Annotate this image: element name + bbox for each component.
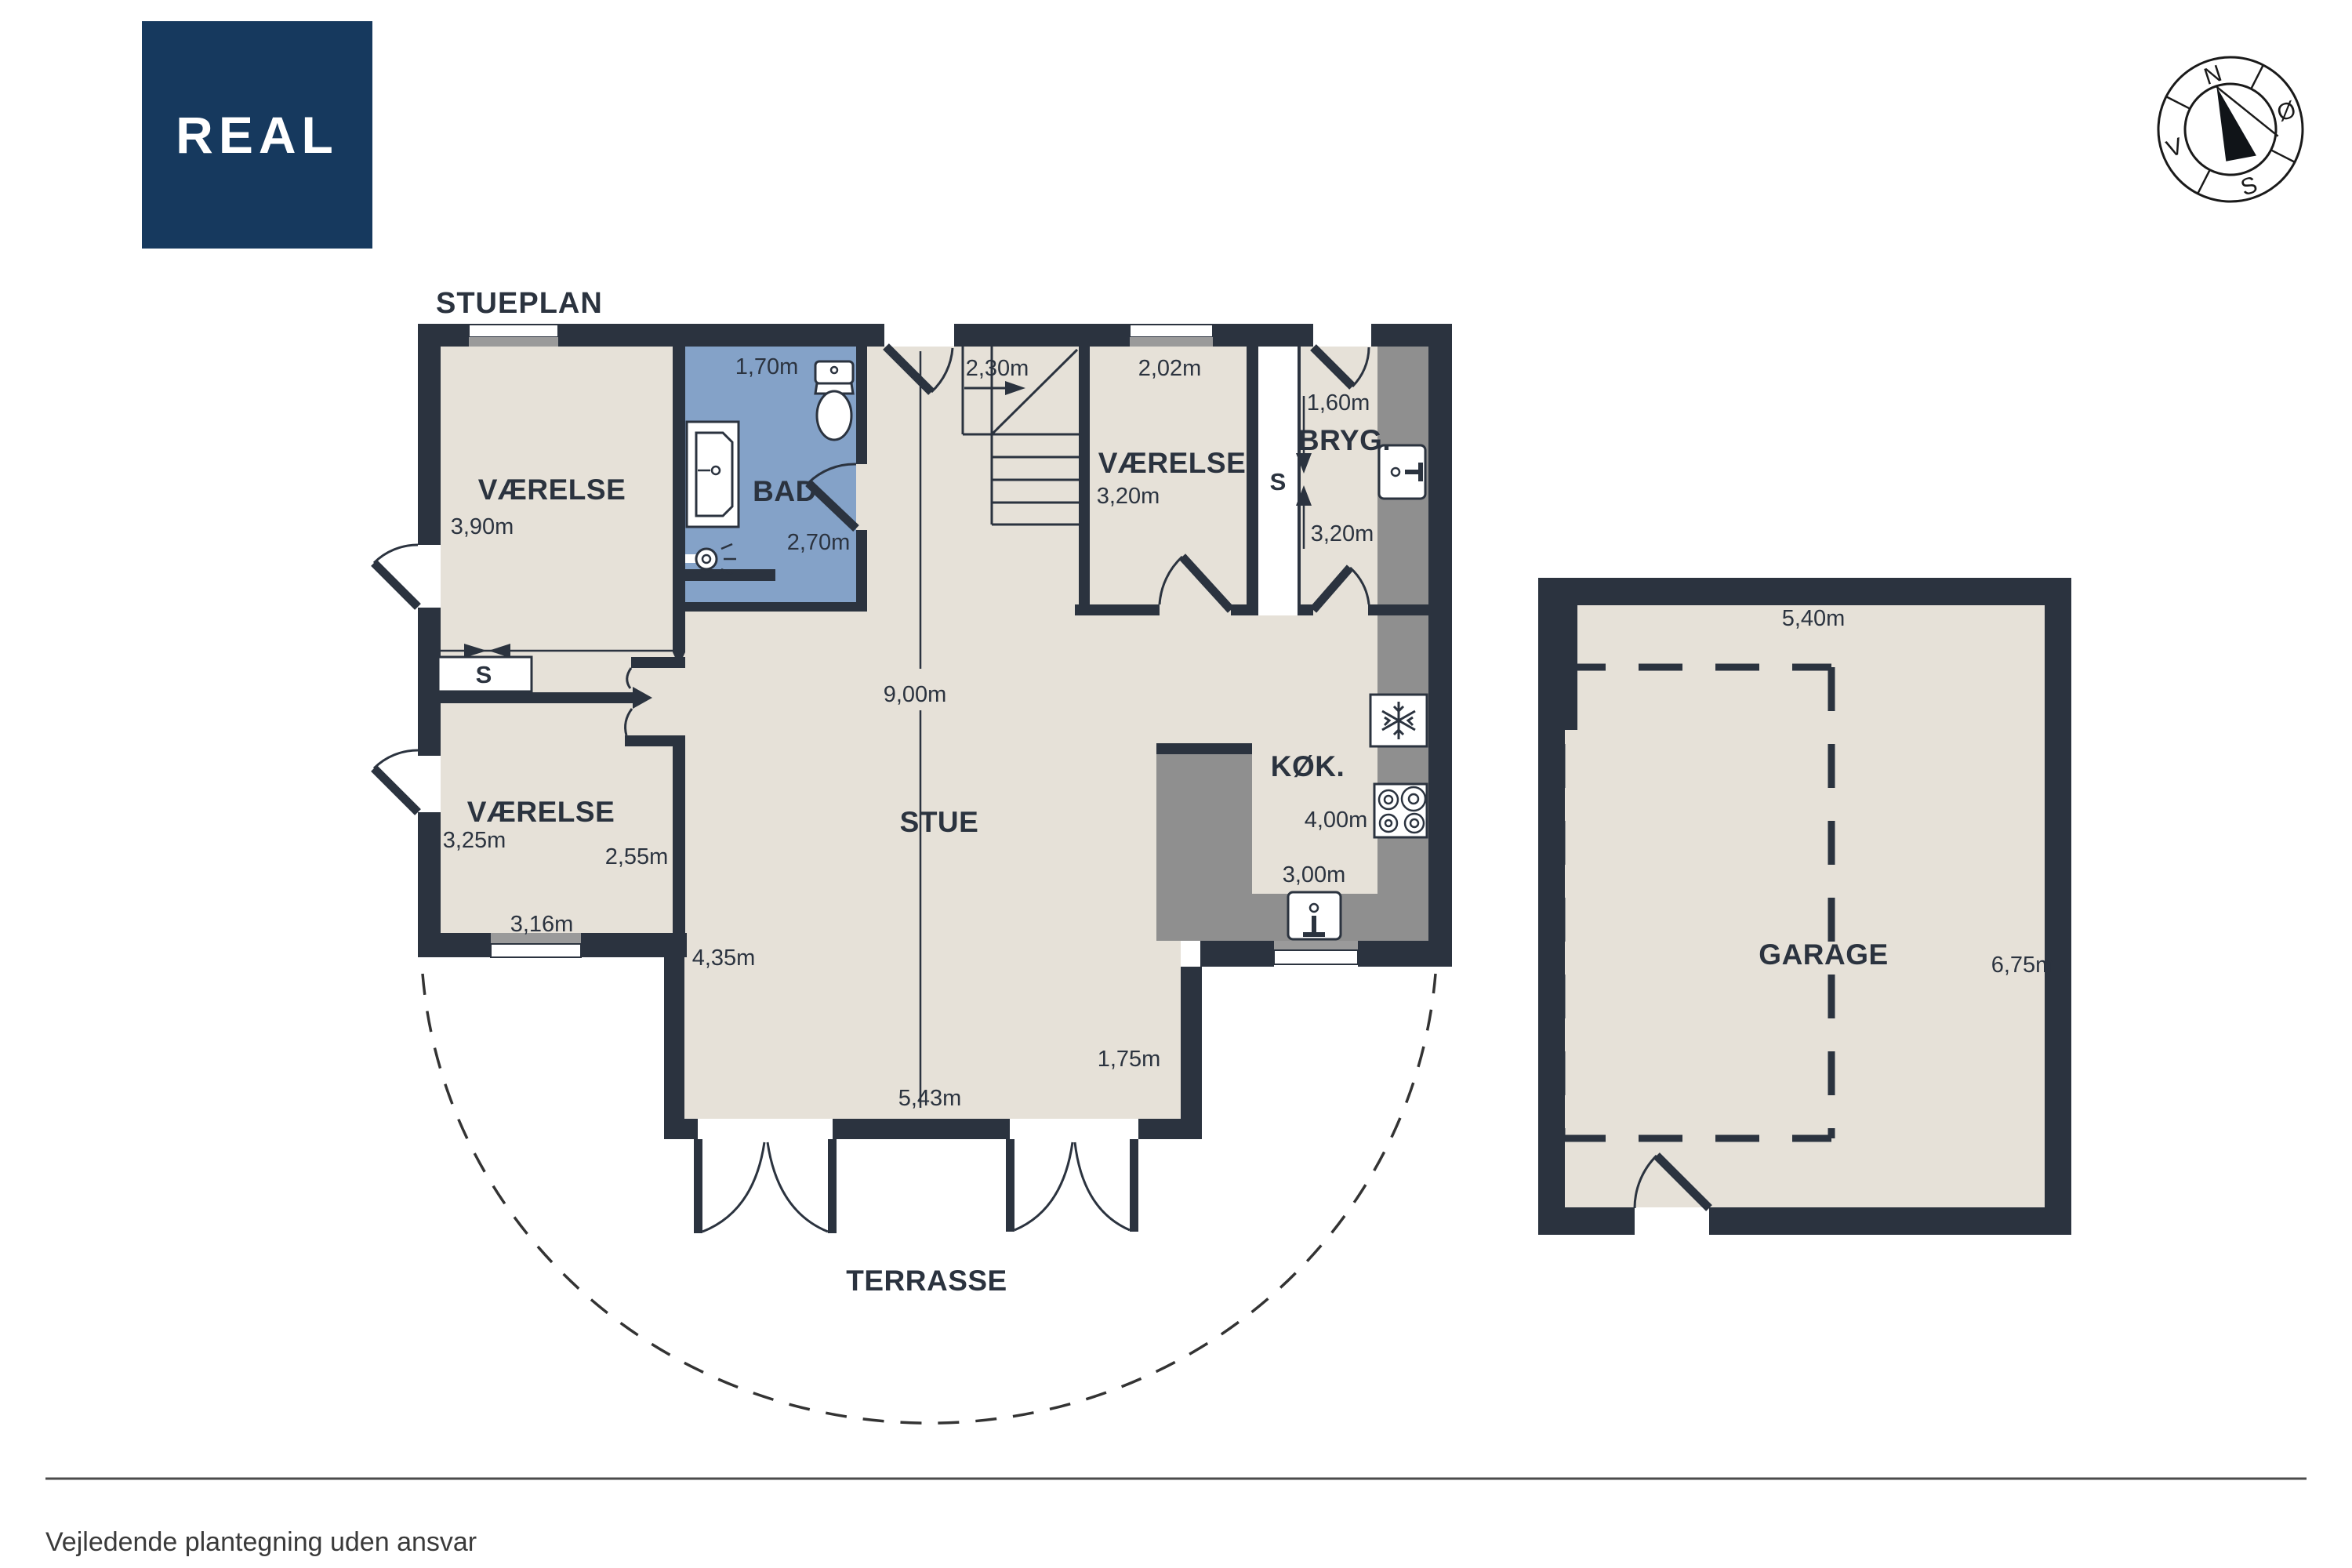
footer: Vejledende plantegning uden ansvar [45, 1479, 2307, 1557]
freezer-icon [1370, 695, 1427, 746]
dim-room3-height: 3,25m [443, 828, 506, 853]
closet2-label: S [1270, 468, 1287, 495]
livingroom-label: STUE [900, 806, 979, 838]
dim-kitchen-a: 4,00m [1305, 808, 1368, 833]
dim-stue-b: 1,75m [1098, 1047, 1161, 1072]
toilet-icon [815, 361, 853, 440]
window-room1 [469, 325, 558, 337]
bryg-label: BRYG. [1298, 424, 1391, 456]
window-room2 [1130, 325, 1213, 337]
dim-stue-length: 9,00m [884, 682, 947, 707]
dim-stue-a: 4,35m [692, 946, 756, 971]
garage-structure [1538, 578, 2071, 1235]
dim-bath-height: 2,70m [787, 530, 851, 555]
dim-kitchen-b: 3,00m [1283, 862, 1346, 887]
dim-bryg-height: 3,20m [1311, 521, 1374, 546]
dim-room2-height: 3,20m [1097, 484, 1160, 509]
disclaimer-text: Vejledende plantegning uden ansvar [45, 1527, 477, 1557]
room3-exterior-door-leaf [374, 768, 418, 812]
dim-stair-width: 2,30m [966, 356, 1029, 381]
dim-bath-width: 1,70m [735, 354, 799, 379]
logo-text: REAL [176, 106, 339, 164]
window-kitchen [1274, 941, 1358, 950]
kitchen-sink-icon [1288, 892, 1341, 939]
dim-room1-height: 3,90m [451, 514, 514, 539]
terrace-label: TERRASSE [846, 1265, 1007, 1297]
compass-icon: N Ø S V [2140, 38, 2321, 221]
bath-label: BAD [753, 475, 817, 507]
room3-label: VÆRELSE [467, 796, 615, 828]
stove-hob-icon [1374, 784, 1427, 837]
dim-garage-height: 6,75m [1991, 953, 2055, 978]
floorplan-drawing: REAL N Ø S V STUEPLAN [0, 0, 2352, 1568]
real-logo: REAL [142, 21, 372, 249]
kitchen-label: KØK. [1271, 750, 1345, 782]
dim-bryg-width: 1,60m [1307, 390, 1370, 416]
dim-garage-width: 5,40m [1782, 606, 1846, 631]
dim-room3-b: 2,55m [605, 844, 669, 869]
dim-room2-width: 2,02m [1138, 356, 1202, 381]
room1-exterior-door-leaf [374, 563, 418, 607]
bath-sink-icon [687, 422, 739, 527]
kitchen-counter-bottom [1156, 894, 1377, 941]
dim-stue-width: 5,43m [898, 1086, 962, 1111]
room2-label: VÆRELSE [1098, 447, 1247, 479]
closet1-label: S [476, 661, 492, 688]
plan-title: STUEPLAN [436, 287, 603, 320]
floorplan-page: REAL N Ø S V STUEPLAN [0, 0, 2352, 1568]
dim-room3-width: 3,16m [510, 912, 574, 937]
room1-label: VÆRELSE [478, 474, 626, 506]
garage-label: GARAGE [1759, 938, 1888, 971]
